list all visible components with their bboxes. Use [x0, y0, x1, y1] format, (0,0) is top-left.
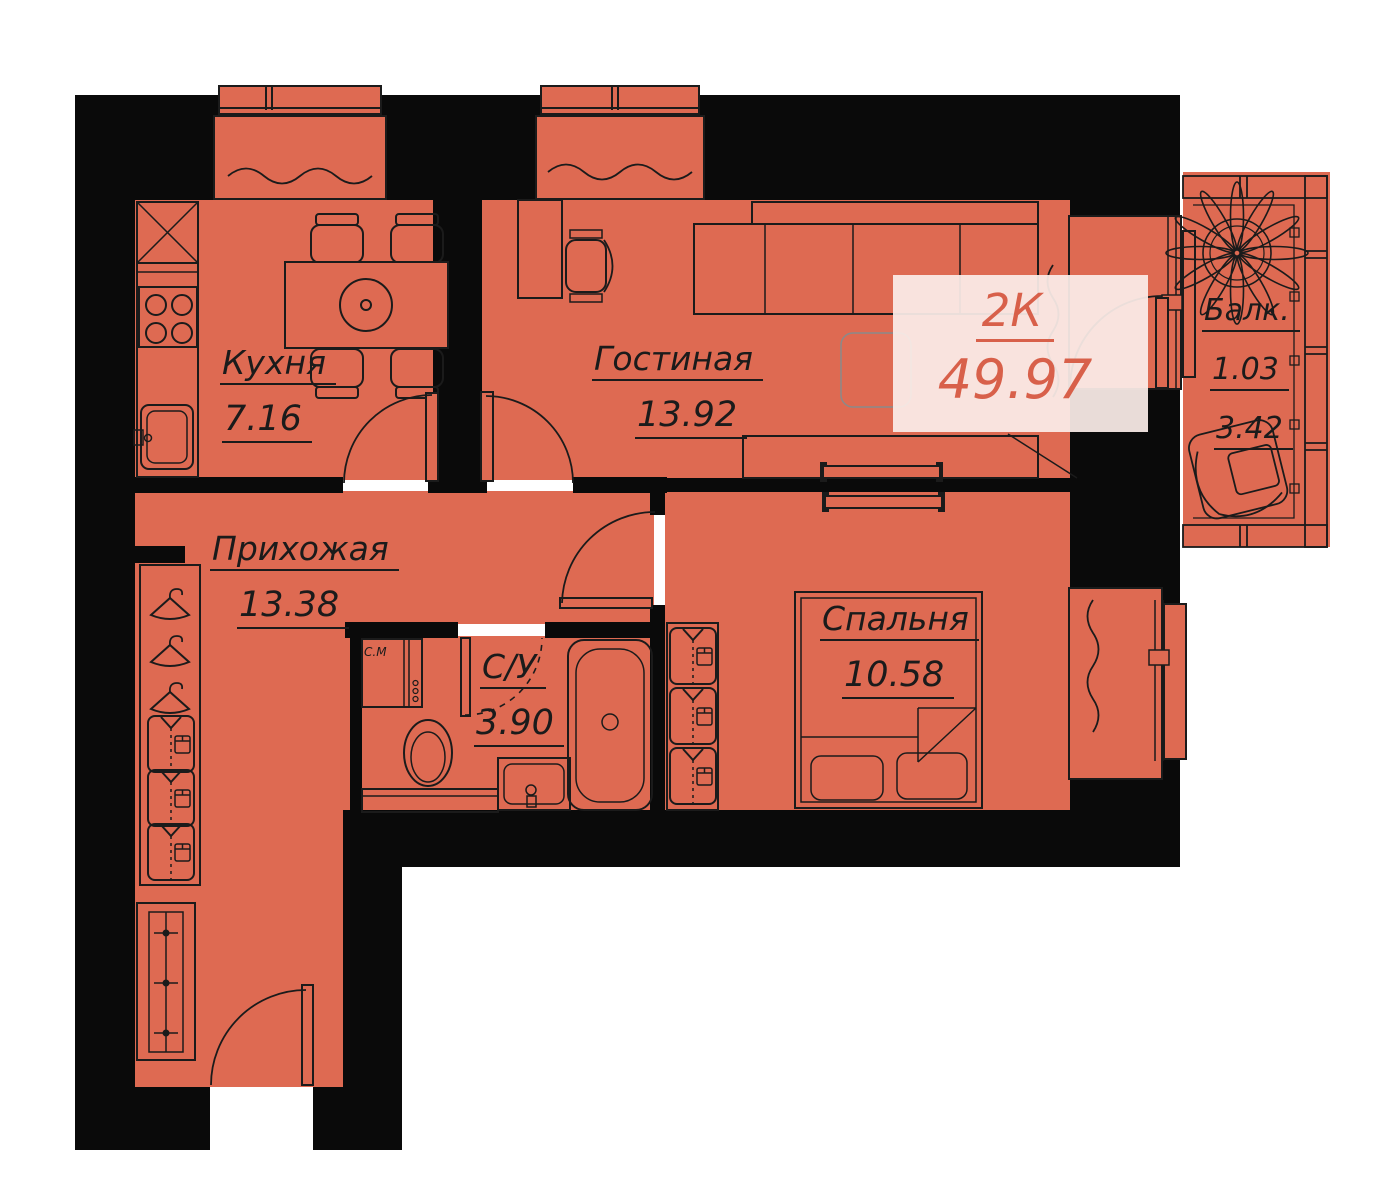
kitchen-window-bay — [213, 115, 387, 200]
wall-south — [402, 810, 1180, 867]
kitchen-label: Кухня — [220, 346, 336, 385]
living-label: Гостиная — [592, 342, 763, 381]
hallway-area: 13.38 — [237, 588, 349, 629]
wall-kitchen-living-divider — [433, 200, 482, 479]
washing-machine-label: С.М — [364, 645, 387, 659]
balcony-door-sill — [1182, 230, 1196, 378]
wall-hallway-stub — [135, 546, 185, 563]
floor-plan: 2К 49.97 Кухня 7.16 Гостиная 13.92 Прихо… — [0, 0, 1400, 1200]
living-window-bay — [535, 115, 705, 200]
wall-bedroom-west — [650, 605, 665, 812]
wall-mid-kitchen — [135, 477, 343, 493]
unit-total-area: 49.97 — [905, 348, 1125, 411]
hallway-label: Прихожая — [210, 532, 399, 571]
bedroom-window-bay — [1068, 587, 1163, 780]
living-area: 13.92 — [635, 398, 747, 439]
wall-bedroom-north — [667, 478, 1080, 492]
kitchen-window-sill — [218, 85, 382, 115]
hallway-floor-left — [135, 622, 352, 1089]
balcony-reduced-area: 1.03 — [1210, 355, 1289, 391]
wall-left — [75, 95, 135, 1150]
wall-bathroom-west — [350, 622, 362, 813]
entrance-opening — [210, 1087, 313, 1150]
living-window-sill — [540, 85, 700, 115]
wall-divider-foot — [428, 477, 487, 493]
bedroom-floor — [665, 491, 1082, 812]
bedroom-window-sill — [1163, 603, 1187, 760]
bathroom-area: 3.90 — [474, 706, 564, 747]
kitchen-area: 7.16 — [222, 402, 312, 443]
bathroom-label: С/У — [480, 650, 546, 689]
unit-type-label: 2К — [940, 284, 1090, 342]
bedroom-area: 10.58 — [842, 658, 954, 699]
balcony-label: Балк. — [1202, 296, 1300, 332]
wall-mid-living — [573, 477, 667, 493]
wall-bedroom-west-stub — [650, 492, 665, 515]
balcony-full-area: 3.42 — [1214, 414, 1293, 450]
wall-bathroom-top-east — [545, 622, 652, 638]
bedroom-label: Спальня — [820, 602, 979, 641]
